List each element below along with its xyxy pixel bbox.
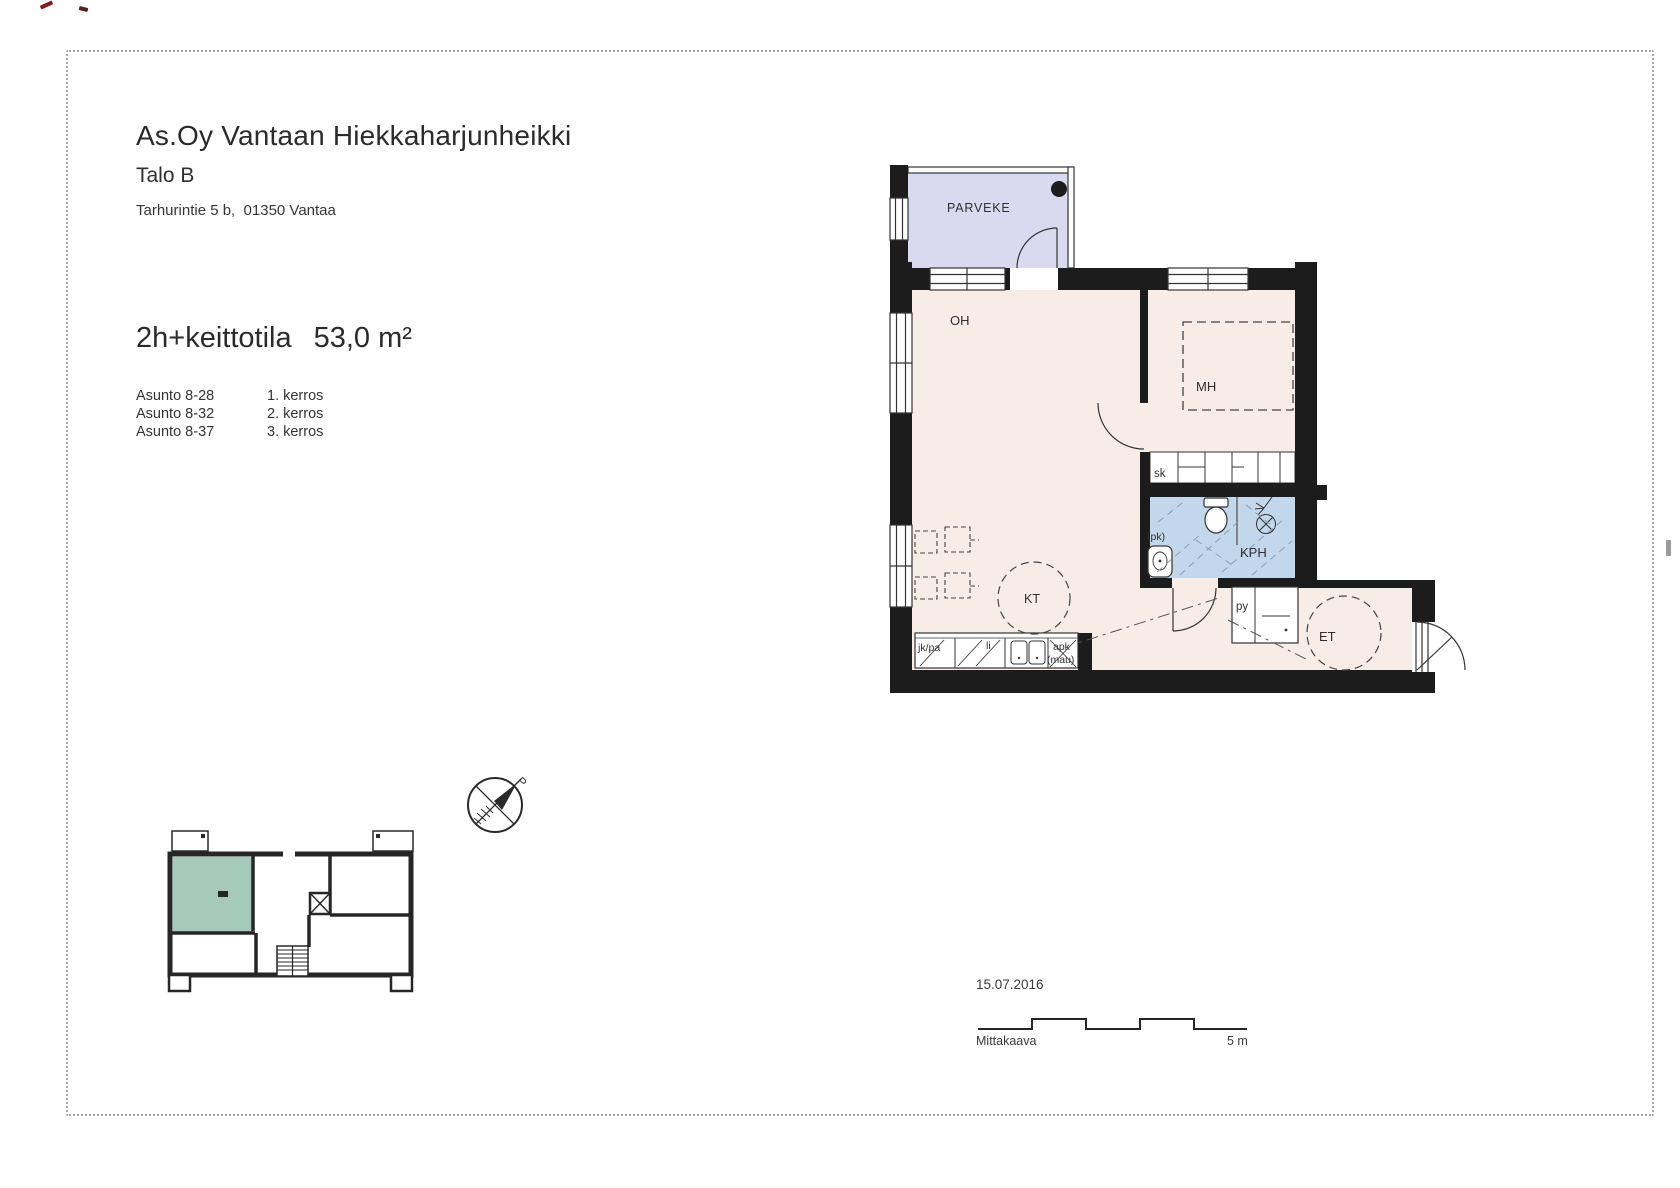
stairs-symbol [277,946,308,976]
jkpa-label: jk/pa [917,642,940,654]
oh-label: OH [950,313,970,328]
bedroom-wall [1140,290,1148,403]
address-line: Tarhurintie 5 b, 01350 Vantaa [136,202,571,219]
linen-cupboard [1232,587,1298,643]
scale-label: Mittakaava [976,1034,1036,1048]
scan-artifact [40,1,54,10]
keyplan-foot [169,975,190,991]
unit-floor: 2. kerros [267,405,323,423]
sk-label: sk [1154,468,1166,480]
building-outline [169,831,413,991]
apartment-area: 53,0 m² [314,322,412,354]
unit-row: Asunto 8-28 1. kerros [136,387,323,405]
keyplan-foot [391,975,412,991]
unit-name: Asunto 8-32 [136,405,267,423]
column-symbol [1051,181,1067,197]
kt-label: KT [1024,592,1040,606]
unit-floor: 1. kerros [267,387,323,405]
scale-bar [975,1012,1265,1034]
unit-name: Asunto 8-37 [136,423,267,441]
apk-label: apk [1053,641,1071,653]
kph-label: KPH [1240,545,1267,560]
page-title: As.Oy Vantaan Hiekkaharjunheikki [136,120,571,152]
title-block: As.Oy Vantaan Hiekkaharjunheikki Talo B … [136,120,571,219]
scan-artifact [1666,540,1671,556]
balcony-floor [908,173,1068,268]
py-label: py [1236,601,1248,613]
elevator-symbol [310,893,330,914]
window [890,313,912,413]
window [890,525,912,607]
highlighted-apartment [173,857,253,932]
plan-date: 15.07.2016 [976,977,1044,992]
scan-artifact [79,6,89,12]
mh-label: MH [1196,379,1216,394]
balcony-railing [1068,167,1074,268]
entrance-door [1412,622,1465,672]
apartment-headline: 2h+keittotila53,0 m² [136,322,412,355]
li-label: li [986,640,991,652]
washbasin-symbol [1148,546,1172,577]
key-plan: P [160,770,540,1005]
compass-icon: P [468,774,530,832]
floor-plan: PARVEKE OH MH sk KPH (pk) py ET KT jk/pa… [860,150,1500,710]
closet-front [1150,452,1295,483]
unit-row: Asunto 8-32 2. kerros [136,405,323,423]
window [1168,268,1248,290]
pk-label: (pk) [1147,531,1165,543]
window [930,268,1005,290]
parveke-label: PARVEKE [947,201,1011,215]
scale-length: 5 m [1227,1034,1248,1048]
toilet-symbol [1204,498,1228,533]
et-label: ET [1319,629,1336,644]
apartment-type: 2h+keittotila [136,322,292,354]
unit-list: Asunto 8-28 1. kerros Asunto 8-32 2. ker… [136,387,323,441]
window [890,198,908,240]
building-name: Talo B [136,164,571,188]
mau-label: (mau) [1047,654,1074,666]
unit-row: Asunto 8-37 3. kerros [136,423,323,441]
room-fills [908,173,1412,670]
unit-name: Asunto 8-28 [136,387,267,405]
unit-floor: 3. kerros [267,423,323,441]
